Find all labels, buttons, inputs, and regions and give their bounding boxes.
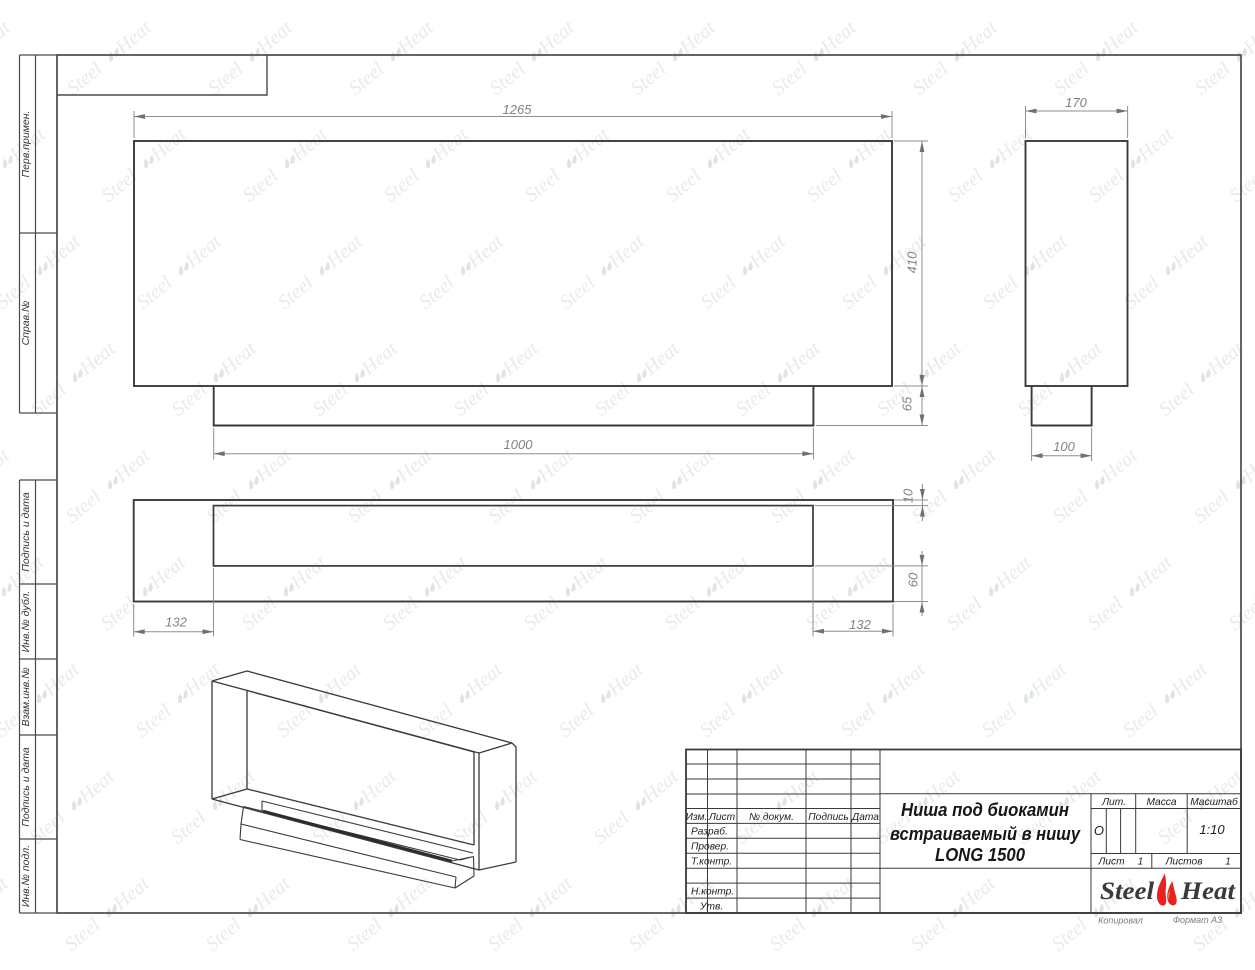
svg-text:1:10: 1:10 — [1199, 822, 1225, 837]
svg-text:встраиваемый в нишу: встраиваемый в нишу — [890, 824, 1081, 844]
svg-text:Разраб.: Разраб. — [691, 826, 728, 838]
svg-text:Перв.примен.: Перв.примен. — [20, 111, 32, 178]
svg-text:65: 65 — [899, 396, 914, 411]
svg-text:Лист: Лист — [1097, 857, 1125, 868]
svg-text:1: 1 — [1138, 857, 1144, 868]
svg-text:Дата: Дата — [851, 812, 879, 823]
svg-text:100: 100 — [1053, 439, 1075, 454]
svg-text:1000: 1000 — [504, 437, 534, 452]
svg-text:Heat: Heat — [1180, 878, 1236, 905]
svg-text:Справ.№: Справ.№ — [20, 301, 32, 346]
svg-text:60: 60 — [905, 572, 920, 587]
svg-text:LONG 1500: LONG 1500 — [935, 845, 1025, 865]
svg-text:132: 132 — [849, 617, 871, 632]
svg-text:Утв.: Утв. — [699, 902, 723, 913]
svg-text:Т.контр.: Т.контр. — [691, 857, 732, 868]
svg-text:Лит.: Лит. — [1101, 797, 1126, 808]
svg-text:Steel: Steel — [1100, 878, 1154, 905]
svg-text:Ниша под биокамин: Ниша под биокамин — [901, 800, 1069, 820]
svg-text:Инв.№ дубл.: Инв.№ дубл. — [20, 591, 32, 653]
svg-text:№ докум.: № докум. — [749, 812, 794, 823]
svg-text:Копировал: Копировал — [1098, 916, 1143, 926]
svg-text:1: 1 — [1225, 857, 1231, 868]
svg-text:О: О — [1094, 823, 1104, 838]
svg-text:Провер.: Провер. — [691, 842, 729, 853]
svg-text:Подпись и дата: Подпись и дата — [20, 747, 32, 827]
svg-text:Н.контр.: Н.контр. — [691, 887, 734, 898]
svg-text:Подпись и дата: Подпись и дата — [20, 492, 32, 572]
svg-text:Масштаб: Масштаб — [1190, 796, 1239, 808]
svg-text:Листов: Листов — [1164, 857, 1203, 868]
svg-text:Лист: Лист — [708, 812, 736, 823]
svg-text:10: 10 — [900, 488, 915, 503]
svg-text:Масса: Масса — [1146, 797, 1176, 808]
svg-text:Инв.№ подл.: Инв.№ подл. — [20, 845, 32, 907]
svg-text:170: 170 — [1065, 95, 1087, 110]
svg-text:410: 410 — [904, 251, 919, 273]
svg-text:Взам.инв.№: Взам.инв.№ — [20, 667, 32, 726]
svg-text:Формат А3: Формат А3 — [1173, 915, 1222, 925]
svg-text:Подпись: Подпись — [808, 812, 848, 823]
svg-text:132: 132 — [165, 615, 187, 630]
svg-text:1265: 1265 — [503, 102, 533, 117]
svg-text:Изм.: Изм. — [686, 812, 708, 823]
